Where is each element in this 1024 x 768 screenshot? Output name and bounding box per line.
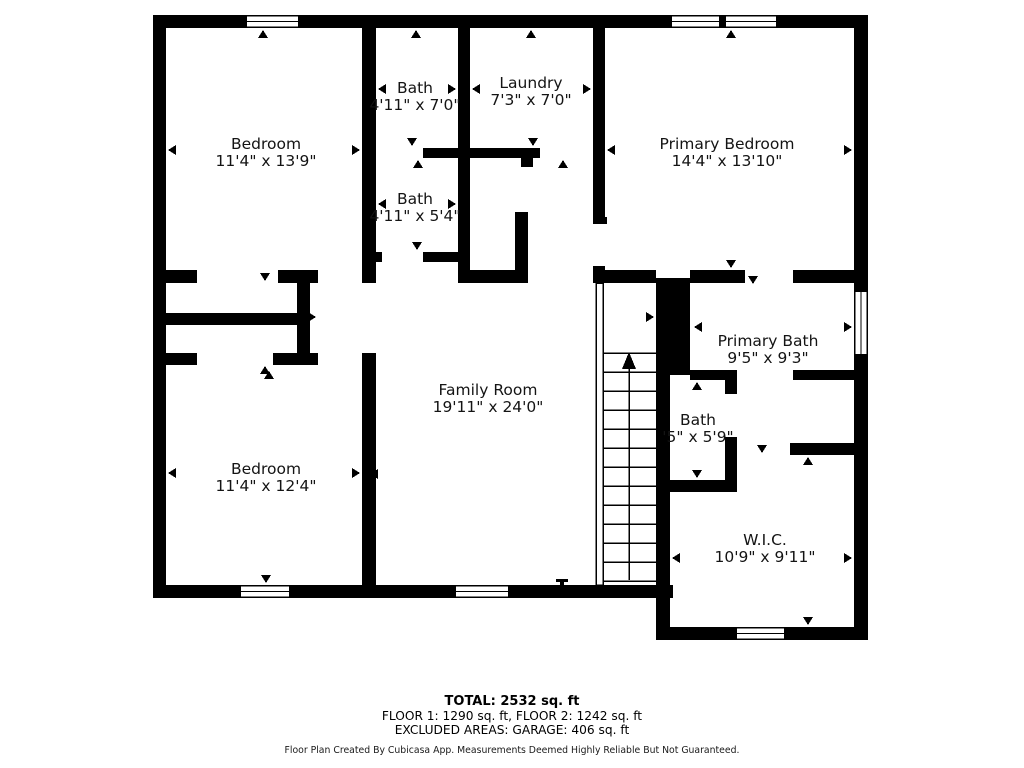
room-label-bath-upper: Bath 4'11" x 7'0"	[369, 80, 460, 114]
window-family-bottom	[452, 585, 512, 598]
wall-bedroom2-top-b	[273, 353, 318, 365]
room-dimensions: 19'11" x 24'0"	[433, 399, 544, 416]
room-label-bath-middle: Bath 4'11" x 5'4"	[369, 191, 460, 225]
stair-up-arrow	[622, 352, 636, 369]
window-primary-top	[668, 15, 780, 28]
total-area-text: TOTAL: 2532 sq. ft	[0, 694, 1024, 709]
wall-bedroom2-top-a	[153, 353, 197, 365]
wall-closet-middle	[153, 313, 298, 325]
room-label-bedroom-1: Bedroom 11'4" x 13'9"	[216, 136, 317, 170]
window-bedroom1-top	[243, 15, 302, 28]
wall-smallbath-right-a	[725, 370, 737, 394]
excluded-areas-text: EXCLUDED AREAS: GARAGE: 406 sq. ft	[0, 723, 1024, 737]
wall-primary-door-stub	[593, 217, 607, 224]
room-dimensions: 14'4" x 13'10"	[660, 153, 795, 170]
room-dimensions: 9'5" x 9'3"	[718, 350, 819, 367]
room-dimensions: 4'11" x 5'4"	[369, 208, 460, 225]
stairs	[596, 283, 656, 585]
room-dimensions: 7'3" x 7'0"	[490, 92, 571, 109]
room-name: Bedroom	[216, 461, 317, 478]
wall-primarybath-bot-a	[690, 370, 727, 380]
room-dimensions: 4'11" x 7'0"	[369, 97, 460, 114]
wall-outer-bottom	[153, 585, 673, 598]
room-label-laundry: Laundry 7'3" x 7'0"	[490, 75, 571, 109]
plan-summary: TOTAL: 2532 sq. ft FLOOR 1: 1290 sq. ft,…	[0, 694, 1024, 756]
room-label-primary-bath: Primary Bath 9'5" x 9'3"	[718, 333, 819, 367]
wall-wic-top	[790, 443, 854, 455]
wall-bath2-bottom	[423, 252, 458, 262]
disclaimer-text: Floor Plan Created By Cubicasa App. Meas…	[0, 745, 1024, 756]
room-name: Primary Bedroom	[660, 136, 795, 153]
room-name: Bedroom	[216, 136, 317, 153]
wall-corridor-top	[458, 270, 528, 283]
room-name: Family Room	[433, 382, 544, 399]
floor-plan-page: Bedroom 11'4" x 13'9" Bath 4'11" x 7'0" …	[0, 0, 1024, 768]
window-primarybath-right	[854, 288, 868, 358]
wall-bedroom1-bath	[362, 28, 376, 283]
wall-laundry-primary-top	[593, 28, 605, 218]
floor-areas-text: FLOOR 1: 1290 sq. ft, FLOOR 2: 1242 sq. …	[0, 709, 1024, 723]
room-dimensions: 10'9" x 9'11"	[715, 549, 816, 566]
window-bedroom2-bottom	[237, 585, 293, 598]
room-dimensions: 11'4" x 13'9"	[216, 153, 317, 170]
room-label-bath-small: Bath '5" x 5'9"	[662, 412, 733, 446]
wall-primarybath-bot-b	[793, 370, 854, 380]
room-name: Bath	[369, 191, 460, 208]
wall-bedroom1-bottom-a	[153, 270, 197, 283]
wall-outer-left	[153, 15, 166, 598]
wall-bath2-bottom-tick	[373, 252, 382, 262]
room-dimensions: '5" x 5'9"	[662, 429, 733, 446]
room-name: Bath	[662, 412, 733, 429]
room-label-primary-bedroom: Primary Bedroom 14'4" x 13'10"	[660, 136, 795, 170]
wall-stair-block	[656, 278, 690, 375]
window-wic-bottom	[733, 627, 788, 640]
room-name: Bath	[369, 80, 460, 97]
room-name: Primary Bath	[718, 333, 819, 350]
wall-primary-bottom	[593, 270, 656, 283]
room-name: Laundry	[490, 75, 571, 92]
room-label-family-room: Family Room 19'11" x 24'0"	[433, 382, 544, 416]
wall-tick-divider	[521, 148, 533, 167]
room-name: W.I.C.	[715, 532, 816, 549]
stair-rail	[596, 283, 603, 585]
room-label-wic: W.I.C. 10'9" x 9'11"	[715, 532, 816, 566]
wall-primarybath-top-a	[690, 270, 745, 283]
room-label-bedroom-2: Bedroom 11'4" x 12'4"	[216, 461, 317, 495]
wall-smallbath-bottom	[656, 480, 737, 492]
room-dimensions: 11'4" x 12'4"	[216, 478, 317, 495]
wall-primarybath-top-b	[793, 270, 854, 283]
